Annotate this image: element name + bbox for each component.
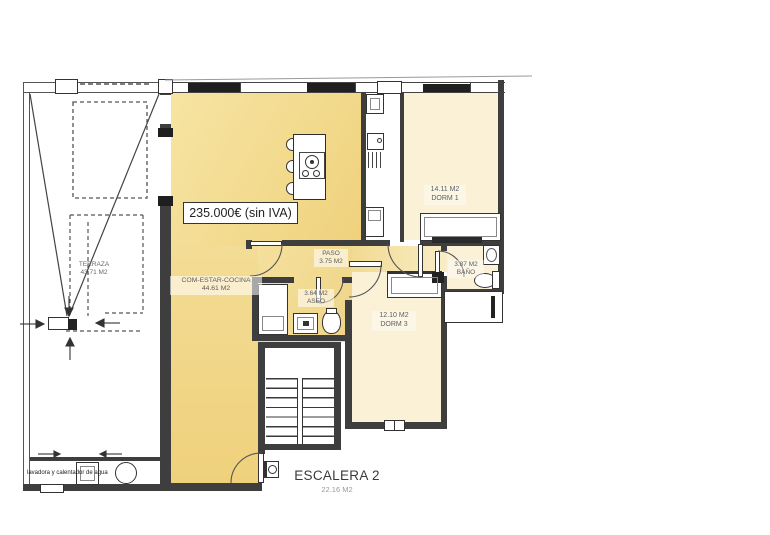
living-bottom-wall [162, 483, 262, 491]
room-aseo-label: 3.64 M2 ASEO [298, 289, 334, 307]
room-bano-label: 3.87 M2 BAÑO [448, 260, 484, 278]
bano-area: 3.87 M2 [449, 261, 483, 269]
facade-junction-box [377, 81, 402, 94]
stair-right-wall [334, 342, 341, 450]
dorm1-wardrobe-inner [424, 217, 497, 237]
stair-bottom-wall [258, 444, 341, 450]
window-living-2 [307, 83, 355, 92]
window-living-1 [188, 83, 240, 92]
facade-tick-2 [355, 83, 356, 92]
window-dorm1 [423, 84, 470, 92]
terrace-top-pillar [55, 79, 78, 94]
salon-name: COM-ESTAR-COCINA [171, 277, 261, 285]
aseo-top-corner [342, 277, 352, 283]
room-dorm1-label: 14.11 M2 DORM 1 [424, 185, 466, 205]
terraza-name: TERRAZA [63, 261, 125, 269]
shower-tray-inner [262, 316, 284, 331]
aseo-name: ASEO [299, 298, 333, 306]
room-dorm3-label: 12.10 M2 DORM 3 [372, 311, 416, 331]
burner-small-icon [302, 170, 309, 177]
pergola-dash-rect [73, 102, 147, 198]
counter-base-inner [368, 210, 381, 221]
stair-left-wall [258, 342, 265, 450]
terrace-top-wall [23, 82, 168, 93]
slope-diagonal-right [69, 94, 159, 316]
dorm3-door-leaf [349, 261, 382, 267]
aseo-bottom-wall [252, 335, 352, 341]
price-tag: 235.000€ (sin IVA) [183, 202, 298, 224]
bano-name: BAÑO [449, 269, 483, 277]
oven-knob [377, 138, 382, 143]
price-text: 235.000€ (sin IVA) [189, 206, 292, 220]
bano-sink-basin [486, 248, 497, 262]
room-paso-label: PASO 3.75 M2 [314, 249, 348, 267]
drain-outlet [68, 319, 77, 330]
room-salon-label: COM-ESTAR-COCINA 44.61 M2 [170, 276, 262, 295]
paso-top-wall [282, 240, 366, 246]
dorm1-door-leaf [418, 244, 423, 277]
terrace-slider-opening [160, 136, 171, 196]
slope-diagonal-left [30, 94, 67, 316]
floor-plan: TERRAZA 43.71 M2 COM-ESTAR-COCINA 44.61 … [0, 0, 770, 535]
escalera-title: ESCALERA 2 [282, 468, 392, 483]
corridor-top-wall [366, 240, 390, 246]
terrace-bottom-notch [40, 484, 64, 493]
burner-small-icon [313, 170, 320, 177]
utility-note-text: lavadora y calentador de agua [27, 470, 108, 476]
facade-tick-1 [240, 83, 241, 92]
aseo-sink-drain [303, 321, 309, 326]
facade-tick-3 [470, 83, 471, 92]
bano-left-wall-upper [441, 243, 447, 251]
counter-vent-inner [370, 98, 380, 110]
burner-large-dot [310, 160, 314, 164]
drain-icon [48, 317, 69, 330]
utility-note: lavadora y calentador de agua [27, 470, 157, 476]
escalera-name: ESCALERA 2 [294, 468, 380, 483]
bano-toilet-tank [492, 271, 500, 289]
stair-top-wall [258, 342, 341, 348]
dorm3-area: 12.10 M2 [373, 312, 415, 321]
stair-stringer [297, 378, 303, 444]
living-top-corner-box [158, 79, 173, 94]
dorm1-area: 14.11 M2 [425, 186, 465, 195]
paso-door-leaf [250, 241, 282, 246]
dorm1-wardrobe-bar [432, 237, 482, 243]
shaft-circle [268, 465, 277, 474]
slider-jamb-bottom [158, 196, 173, 206]
terraza-area: 43.71 M2 [63, 269, 125, 277]
escalera-area-text: 22.16 M2 [321, 485, 352, 494]
salon-area: 44.61 M2 [171, 285, 261, 293]
slider-jamb-top [158, 128, 173, 137]
corridor-floor [352, 246, 447, 272]
counter-hatch [368, 152, 384, 168]
room-terraza-label: TERRAZA 43.71 M2 [62, 260, 126, 278]
paso-area: 3.75 M2 [315, 258, 347, 266]
paso-name: PASO [315, 250, 347, 258]
utility-wall [30, 457, 162, 461]
terrace-door-opening [160, 95, 171, 124]
store-room-tick [491, 296, 495, 318]
dorm1-name: DORM 1 [425, 195, 465, 204]
aseo-toilet-tank [326, 308, 337, 314]
dorm3-window-mullion [394, 420, 395, 431]
entrance-door-leaf [258, 453, 264, 483]
dorm1-left-wall [400, 92, 404, 242]
dorm3-wardrobe-inner [391, 277, 438, 294]
dorm3-left-wall [345, 300, 352, 428]
escalera-area: 22.16 M2 [282, 485, 392, 494]
aseo-area: 3.64 M2 [299, 290, 333, 298]
roof-outline [165, 76, 532, 80]
dorm3-name: DORM 3 [373, 321, 415, 330]
terrace-left-wall [23, 82, 30, 491]
